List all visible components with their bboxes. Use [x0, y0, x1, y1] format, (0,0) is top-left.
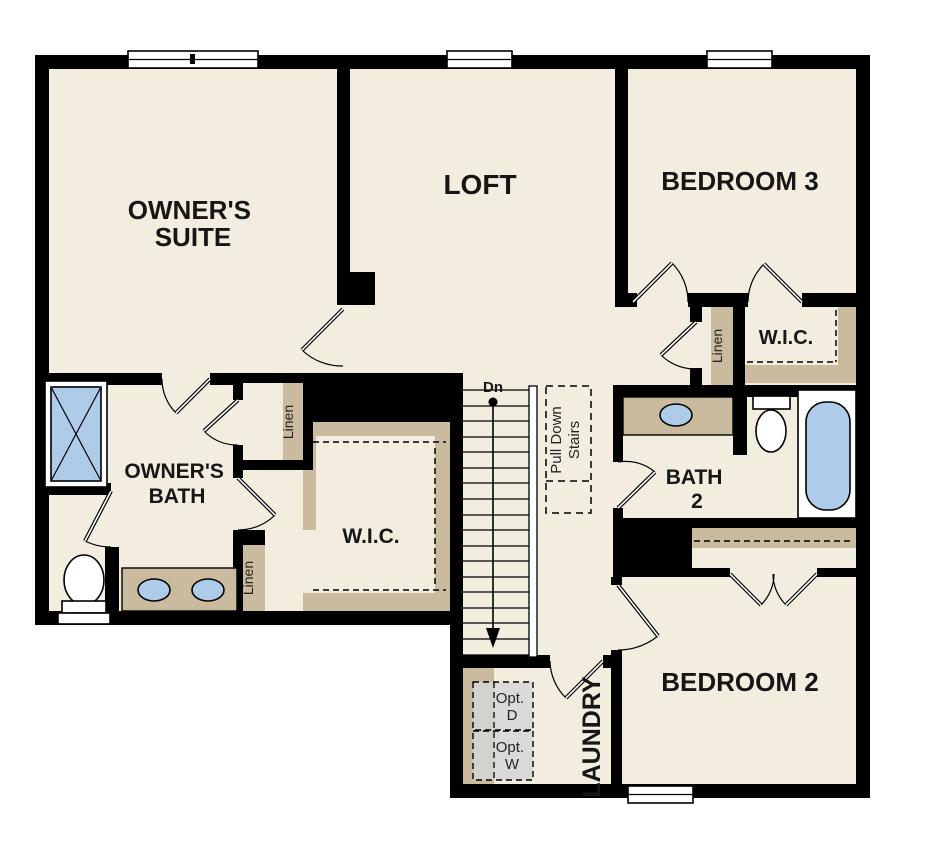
chase-block — [613, 518, 692, 577]
shower-icon — [45, 381, 107, 487]
bedroom3-wic-shelf-bottom — [745, 365, 856, 383]
bath-linen-upper-label: Linen — [280, 405, 296, 439]
bedroom3-linen-label: Linen — [709, 329, 725, 363]
stair-head-block — [303, 373, 460, 422]
laundry-label: LAUNDRY — [578, 676, 606, 798]
owners-wic-passage — [303, 530, 316, 593]
vanity-sink-icon — [660, 404, 692, 426]
bedroom3-window — [707, 51, 772, 68]
pull-down-stairs-label-line1: Pull Down — [548, 406, 565, 474]
loft-window — [447, 51, 512, 68]
stair-rail — [529, 386, 537, 657]
bath2-vanity — [623, 397, 733, 435]
stairs-down-label: Dn — [483, 379, 503, 396]
pull-down-stairs-label-line2: Stairs — [566, 421, 583, 459]
bedroom2-closet-shelf — [692, 528, 856, 548]
owners-wic-floor — [316, 436, 435, 593]
stair-direction-start-dot — [489, 398, 498, 407]
bathtub-icon — [798, 390, 856, 518]
vanity-sink-icon — [138, 579, 170, 601]
vanity-sink-icon — [192, 579, 224, 601]
bedroom2-label: BEDROOM 2 — [661, 667, 818, 697]
bedroom3-label: BEDROOM 3 — [661, 166, 818, 196]
owners-wic-label: W.I.C. — [342, 525, 399, 548]
owners-vanity — [122, 568, 237, 611]
loft-label: LOFT — [443, 169, 516, 200]
bedroom3-wic-label: W.I.C. — [759, 327, 813, 349]
owners-suite-window — [128, 51, 258, 68]
bath-linen-lower-label: Linen — [240, 561, 256, 595]
bedroom2-window — [628, 786, 693, 803]
floor-plan: OWNER'S SUITE LOFT BEDROOM 3 W.I.C. Line… — [0, 0, 943, 849]
floor-plan-page: OWNER'S SUITE LOFT BEDROOM 3 W.I.C. Line… — [0, 0, 943, 849]
